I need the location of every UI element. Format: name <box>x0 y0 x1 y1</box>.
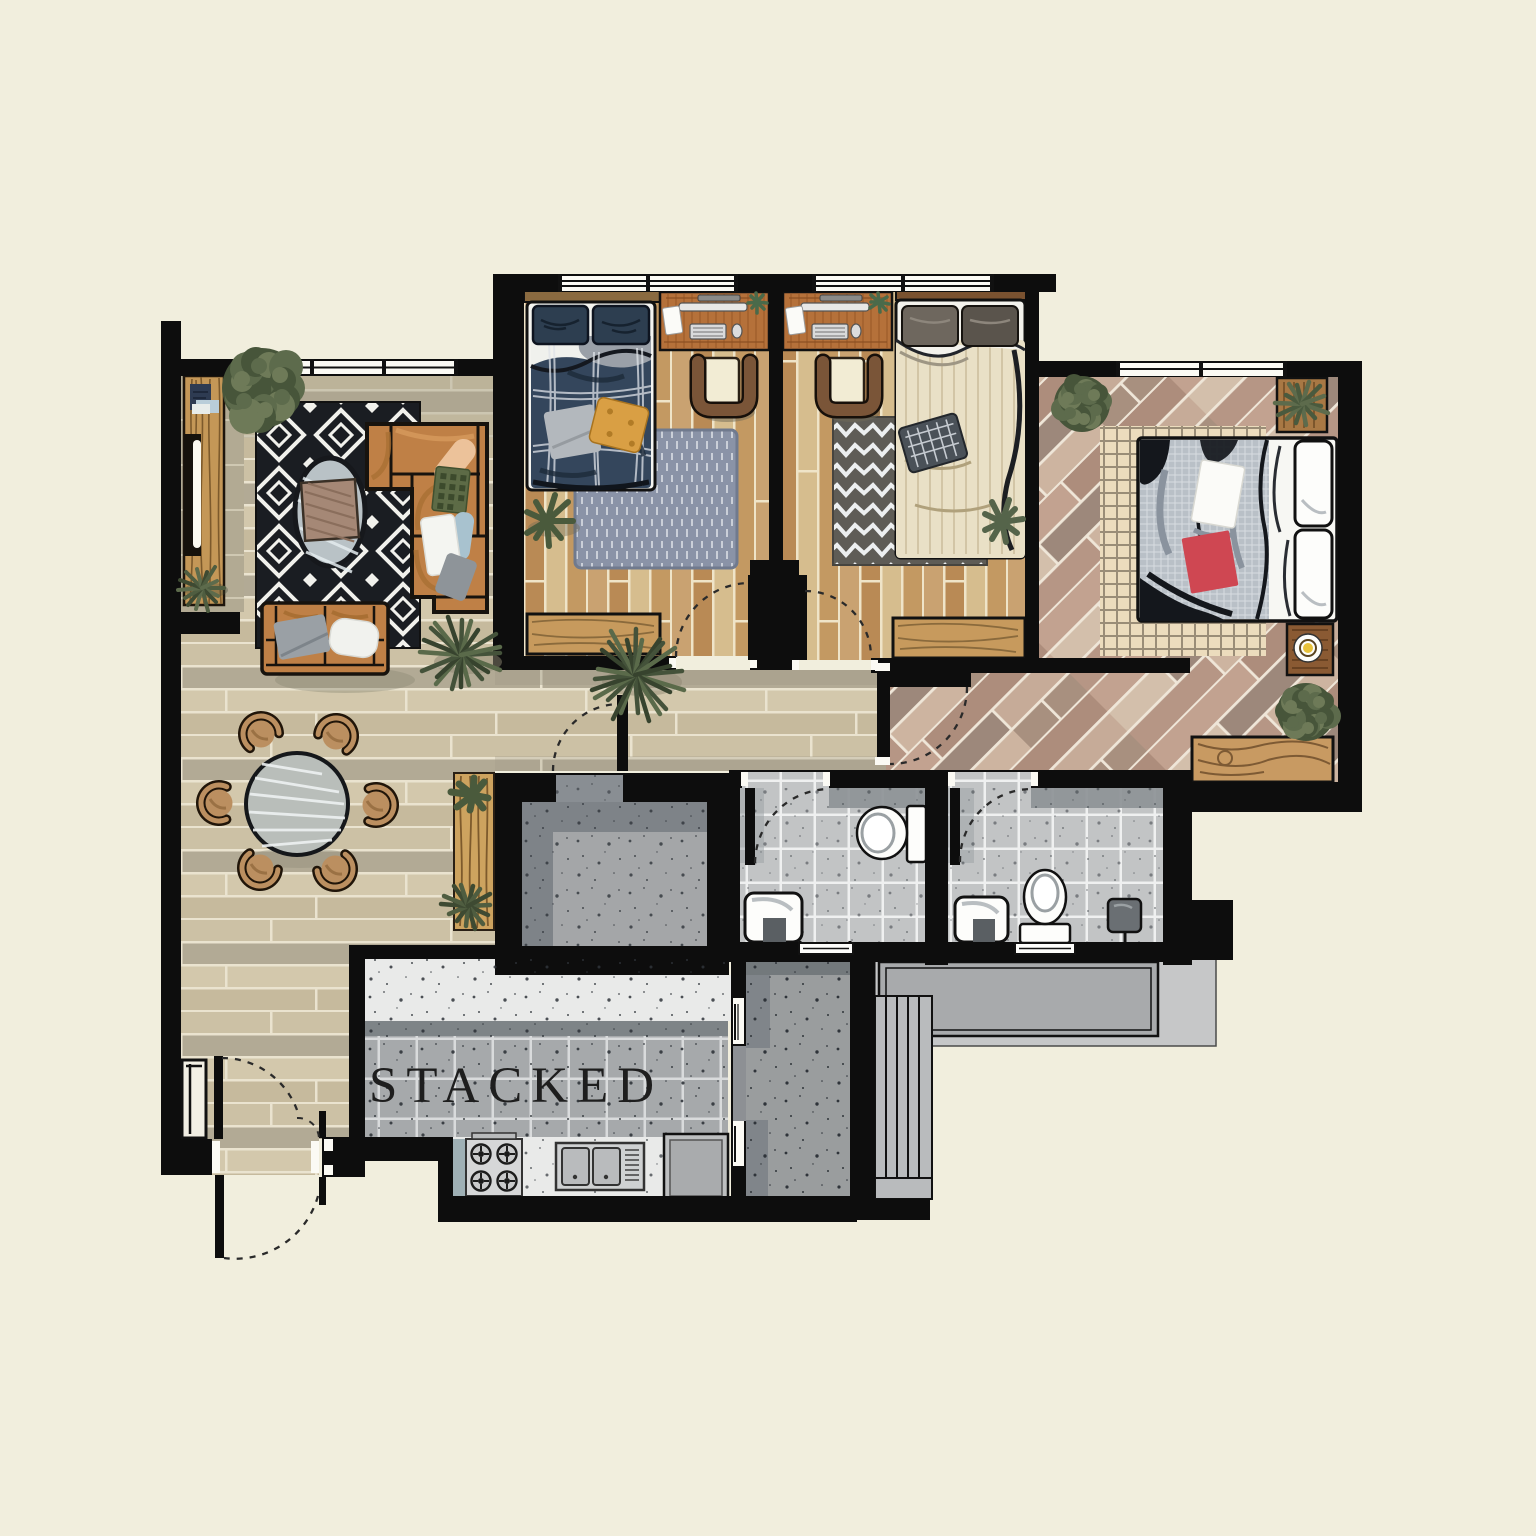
svg-text:STACKED: STACKED <box>369 1058 663 1114</box>
